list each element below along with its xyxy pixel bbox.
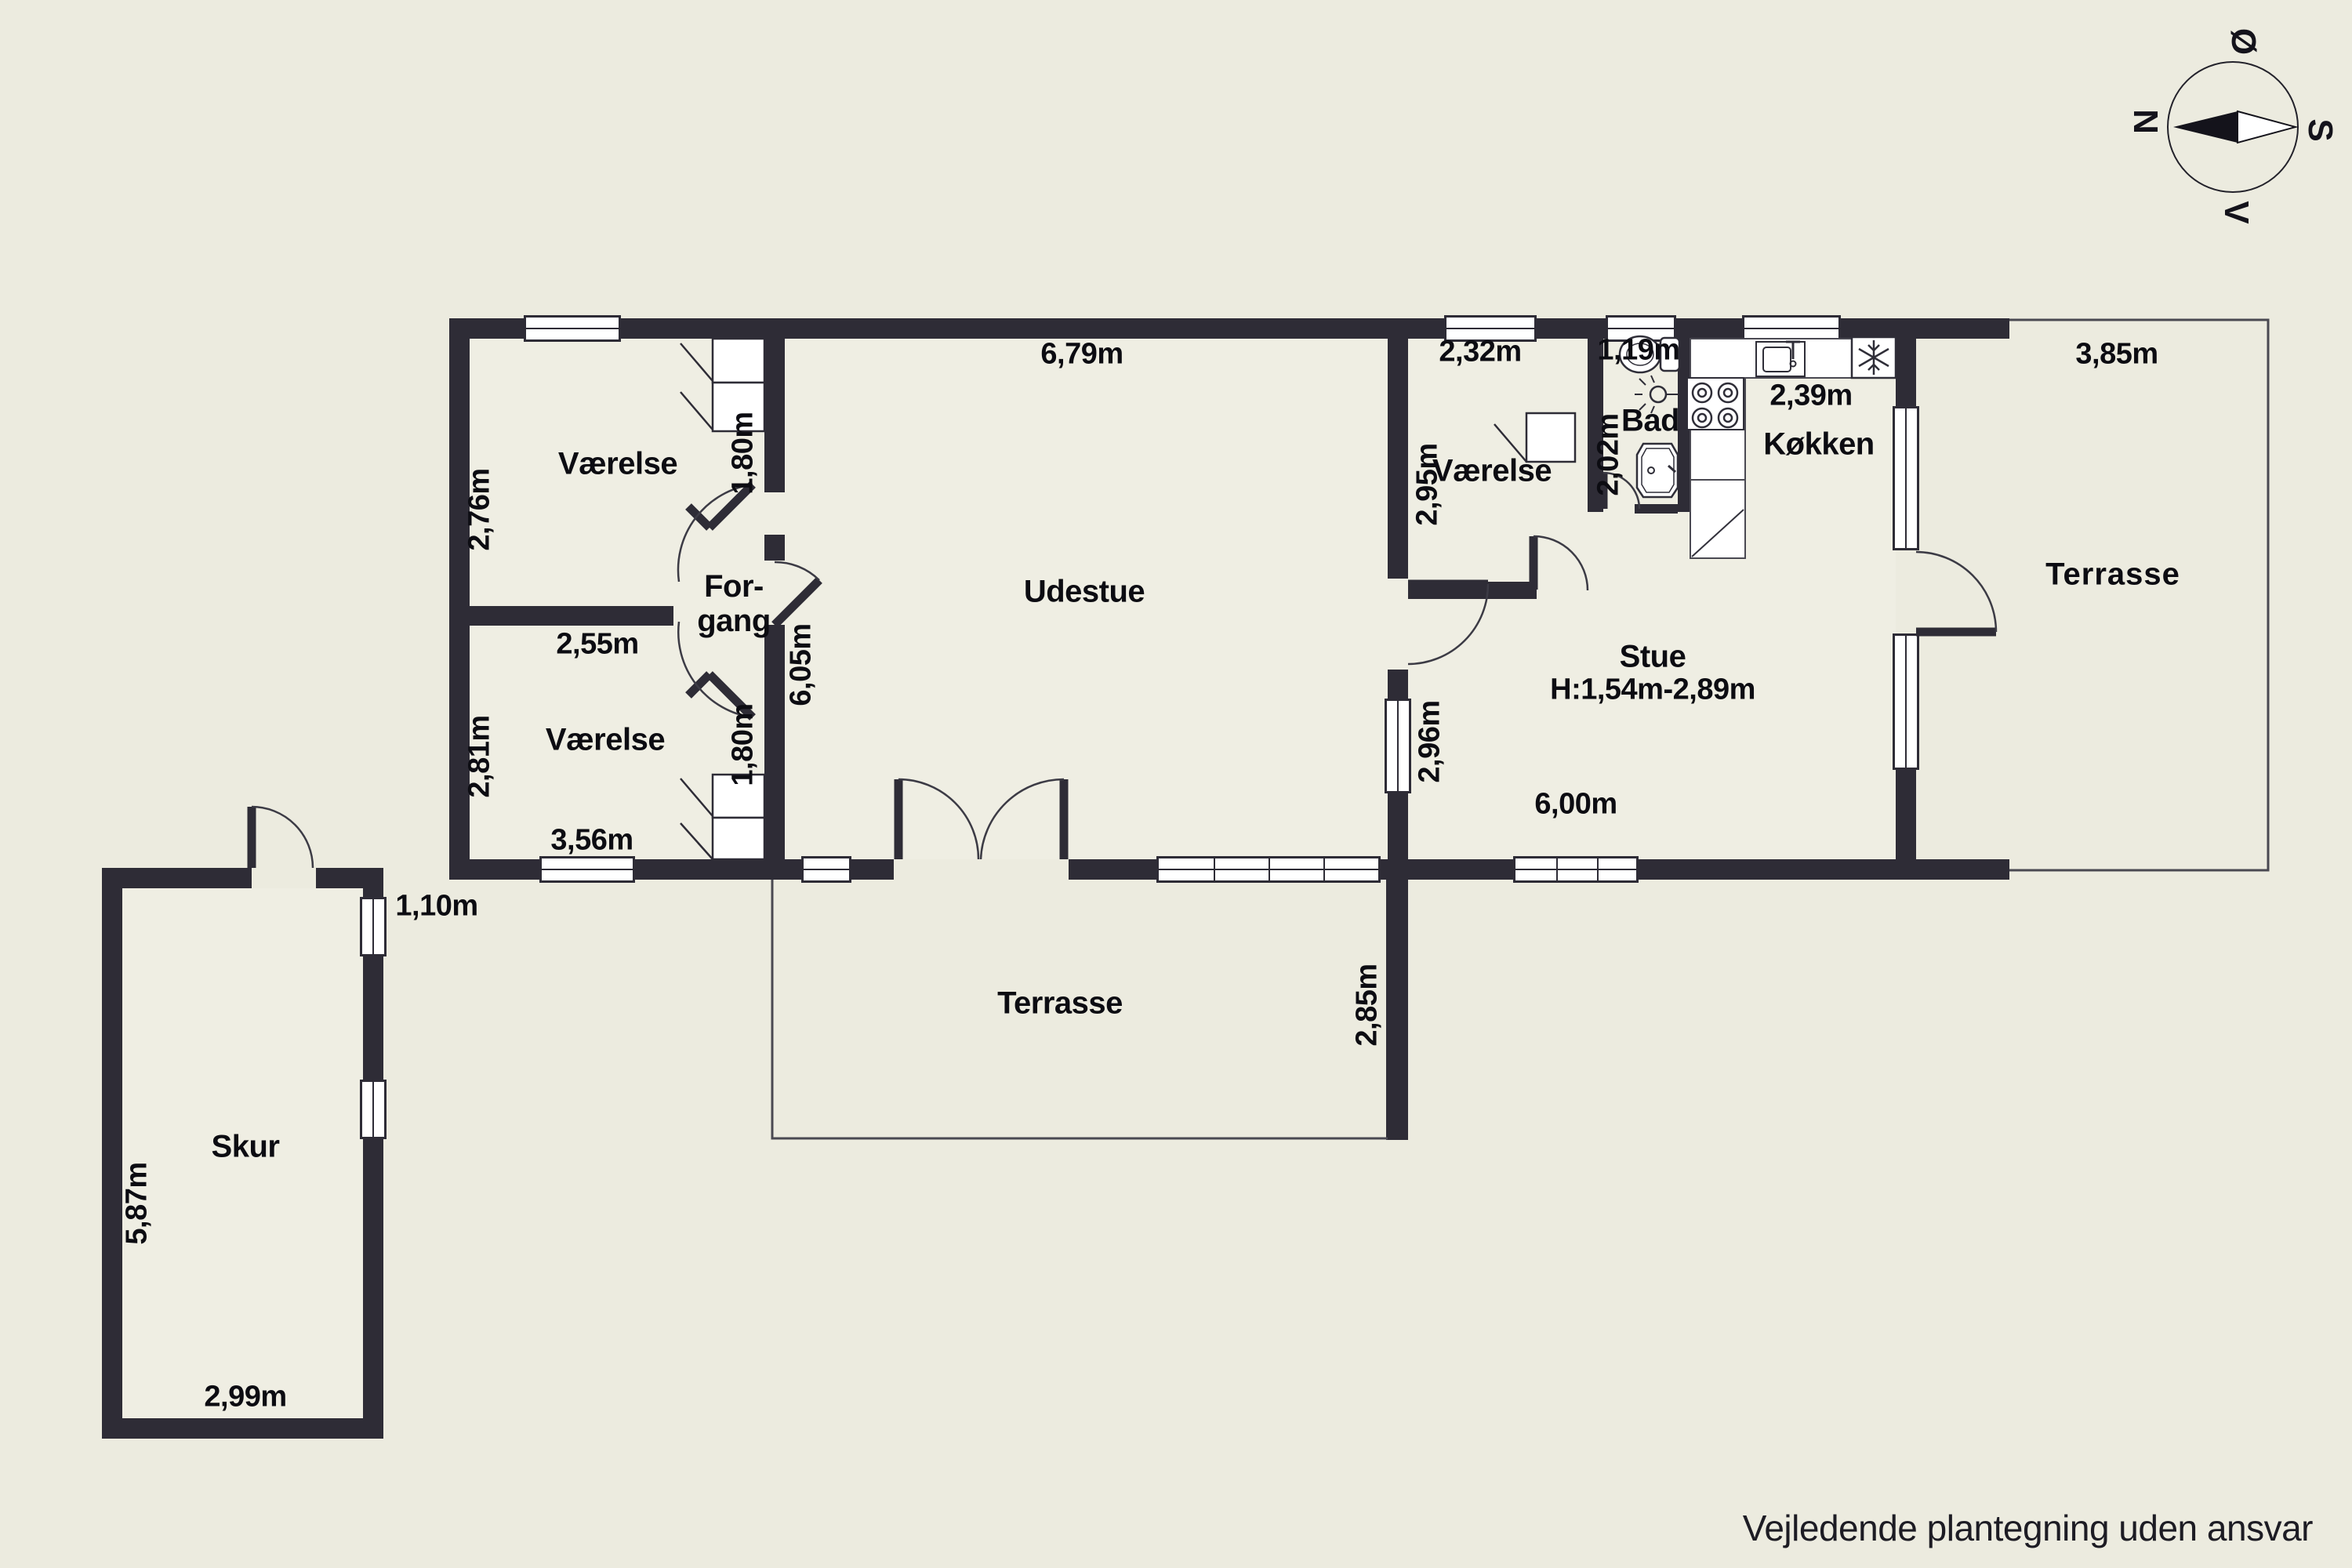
vaerelse-mid-width: 2,32m <box>1439 336 1521 369</box>
disclaimer-note: Vejledende plantegning uden ansvar <box>1743 1507 2313 1549</box>
wardrobe-door-line <box>681 392 713 430</box>
vaerelse-nw-wall-width: 2,55m <box>556 628 638 662</box>
plan-linework <box>0 0 2352 1568</box>
wardrobe-icon <box>713 818 764 859</box>
terrasse-south-label: Terrasse <box>997 986 1123 1022</box>
door-arc-terrasse-east <box>1916 552 1996 632</box>
stue-ceiling-height: H:1,54m-2,89m <box>1550 673 1755 707</box>
skur-width: 2,99m <box>204 1381 286 1414</box>
skur-door-width: 1,10m <box>395 890 477 924</box>
compass-north-label: N <box>2125 109 2165 134</box>
compass-needle-north <box>2173 111 2238 143</box>
bad-depth: 2,02m <box>1592 413 1626 495</box>
wardrobe-door-line <box>681 343 713 381</box>
compass-south-label: S <box>2300 118 2339 141</box>
stue-window-width: 2,96m <box>1414 700 1447 782</box>
vaerelse-nw-label: Værelse <box>558 447 677 482</box>
floor-plan: Værelse 2,76m 1,80m 2,55m Værelse 2,81m … <box>0 0 2352 1568</box>
ceiling-lamp-icon <box>1650 387 1666 402</box>
door-arc-forgang-udestue <box>775 562 819 580</box>
vaerelse-nw-depth: 2,76m <box>463 468 497 550</box>
compass-west-label: V <box>2216 201 2256 223</box>
forgang-label: For- gang <box>697 569 771 638</box>
wardrobe-door-line <box>681 779 713 816</box>
skur-depth: 5,87m <box>121 1162 154 1244</box>
koekken-width: 2,39m <box>1769 379 1852 413</box>
terrasse-east-width: 3,85m <box>2075 338 2158 372</box>
vaerelse-mid-depth: 2,95m <box>1411 443 1445 525</box>
compass-rose-icon <box>2168 62 2298 192</box>
vaerelse-sw-width: 3,56m <box>550 824 633 858</box>
door-arc-skur <box>252 807 313 868</box>
door-arc-udestue-stue <box>1408 584 1488 664</box>
stue-label: Stue <box>1620 640 1686 675</box>
wardrobe-door-line <box>681 823 713 859</box>
wardrobe-icon <box>713 339 764 383</box>
terrasse-east-label: Terrasse <box>2045 557 2180 593</box>
forgang-line1: For- <box>704 569 764 604</box>
door-leaf-forgang-udestue <box>775 580 819 625</box>
vaerelse-mid-label: Værelse <box>1432 454 1552 489</box>
stue-width: 6,00m <box>1534 788 1617 822</box>
vaerelse-sw-closet-width: 1,80m <box>727 703 760 786</box>
vaerelse-sw-label: Værelse <box>546 723 665 758</box>
udestue-depth: 6,05m <box>785 623 818 706</box>
vaerelse-sw-depth: 2,81m <box>463 715 497 797</box>
skur-label: Skur <box>212 1130 280 1165</box>
bad-label: Bad <box>1621 404 1679 439</box>
door-arc-vaerelse-mid <box>1534 536 1588 590</box>
french-door-arc-right <box>981 779 1064 859</box>
terrasse-south-depth: 2,85m <box>1351 964 1385 1046</box>
vaerelse-nw-closet-width: 1,80m <box>727 412 760 494</box>
bad-width: 1,19m <box>1597 334 1679 368</box>
french-door-arc-left <box>898 779 978 859</box>
forgang-line2: gang <box>697 604 771 638</box>
terrasse-east-outline <box>2009 320 2268 870</box>
udestue-label: Udestue <box>1024 575 1145 610</box>
compass-east-label: Ø <box>2223 28 2263 55</box>
udestue-width: 6,79m <box>1040 338 1123 372</box>
koekken-label: Køkken <box>1763 427 1875 463</box>
compass-needle-south <box>2238 111 2296 143</box>
